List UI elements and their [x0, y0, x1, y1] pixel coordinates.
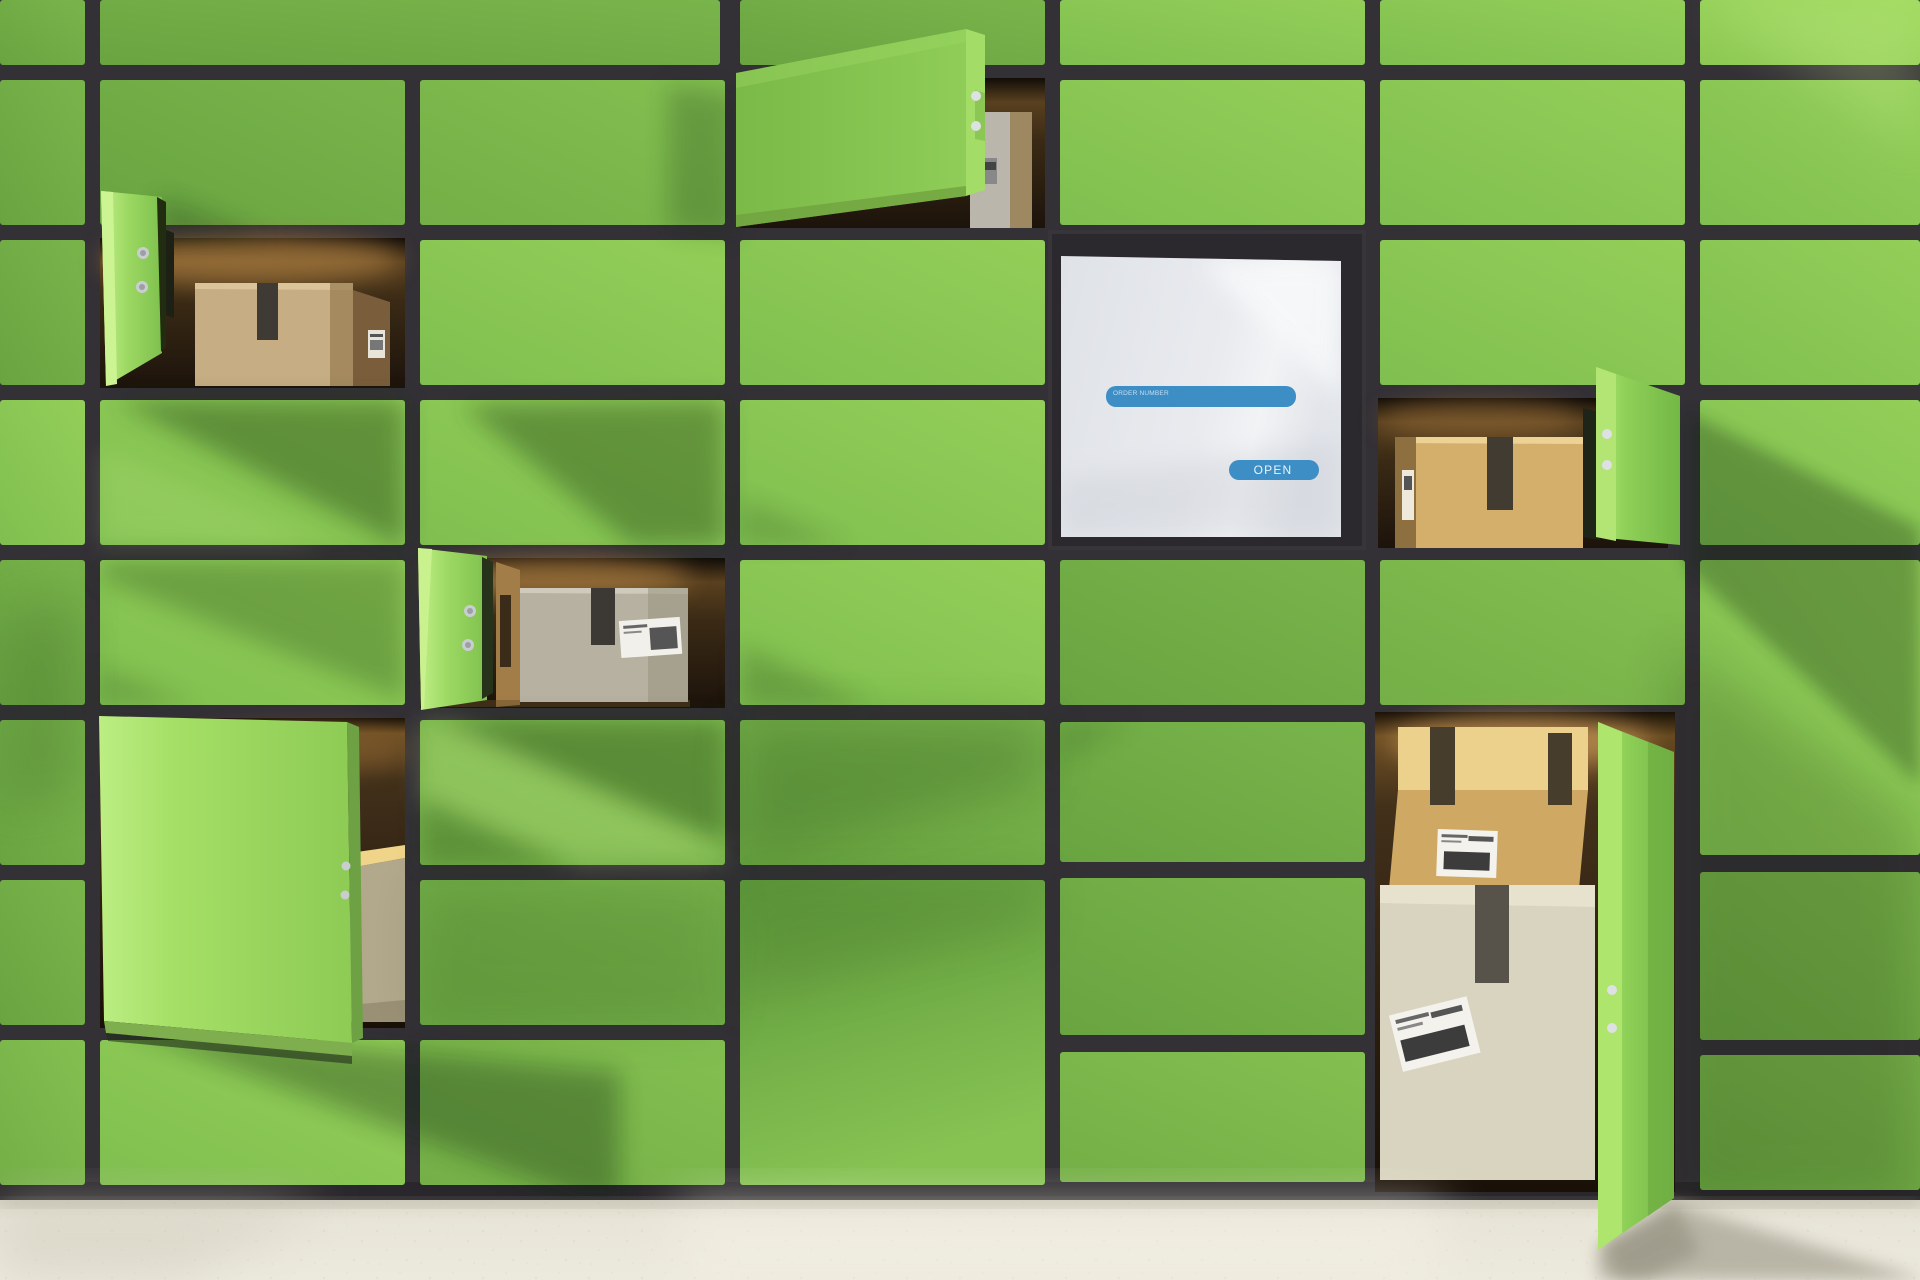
svg-text:ORDER NUMBER: ORDER NUMBER	[1113, 390, 1169, 397]
svg-text:OPEN: OPEN	[1254, 463, 1293, 477]
